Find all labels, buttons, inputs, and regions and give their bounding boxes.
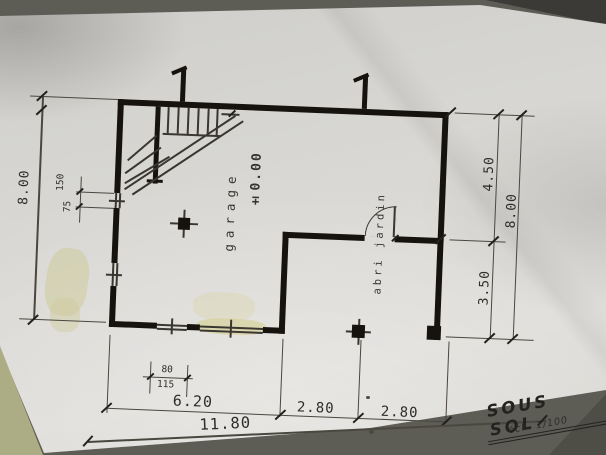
extension-line: [106, 335, 110, 413]
photo-of-floor-plan: garage ±0.00 abri jardin 8.00 150 75 4.5…: [0, 0, 606, 455]
highlighter-smudge: [192, 291, 255, 321]
dim-label-bottom-total: 11.80: [195, 413, 256, 434]
wall-bottom-pier: [187, 324, 200, 331]
window-center-tick: [230, 320, 233, 338]
dimension-line-window: [79, 177, 82, 223]
wall-right: [434, 112, 449, 340]
dim-label-bottom-seg2: 2.80: [293, 399, 338, 417]
wall-mid-vertical: [279, 232, 289, 334]
window-center-tick: [106, 274, 122, 277]
stair-tread: [177, 107, 180, 133]
wall-stub-left: [180, 70, 186, 102]
floor-plan-drawing: garage ±0.00 abri jardin 8.00 150 75 4.5…: [4, 56, 580, 455]
dim-label-small-width: 80: [155, 364, 179, 376]
dim-label-bottom-seg1: 6.20: [171, 391, 216, 411]
wall-footing: [427, 326, 442, 341]
extension-line: [279, 339, 283, 417]
shed-column: [352, 325, 366, 339]
dim-label-left-total: 8.00: [16, 173, 32, 206]
extension-line: [76, 191, 114, 194]
wall-left-middle: [111, 208, 119, 263]
stair-tread: [167, 107, 170, 133]
stair-tread: [216, 109, 219, 137]
extension-line: [450, 239, 506, 242]
wall-bottom-right: [263, 327, 285, 334]
wall-bottom-left: [109, 321, 157, 329]
stair-tread: [197, 108, 200, 135]
extension-line: [445, 341, 449, 423]
dim-label-window-height: 75: [62, 193, 74, 219]
dim-label-small-sill: 115: [151, 379, 179, 391]
dim-label-bottom-seg3: 2.80: [377, 404, 422, 422]
extension-line: [357, 340, 361, 418]
wall-left-upper: [114, 99, 124, 193]
stair-break-line: [124, 115, 236, 190]
garage-column: [178, 218, 190, 230]
room-label-abri-jardin: abri jardin: [371, 204, 387, 294]
room-label-garage: garage: [220, 158, 239, 264]
wall-stub-right: [362, 77, 368, 109]
dim-label-right-lower: 3.50: [477, 273, 493, 306]
extension-line: [76, 206, 114, 209]
stair-rail: [163, 133, 221, 137]
dim-label-right-upper: 4.50: [481, 159, 497, 192]
window-center-tick: [109, 200, 125, 203]
dim-label-right-total: 8.00: [504, 196, 520, 229]
stair-tread: [187, 108, 190, 135]
stair-winder: [127, 135, 157, 161]
wall-mid-horizontal-left: [283, 232, 365, 241]
level-mark-label: ±0.00: [248, 149, 265, 210]
dimension-line-left: [33, 96, 43, 320]
stair-wall: [153, 107, 161, 184]
window-center-tick: [171, 318, 174, 334]
